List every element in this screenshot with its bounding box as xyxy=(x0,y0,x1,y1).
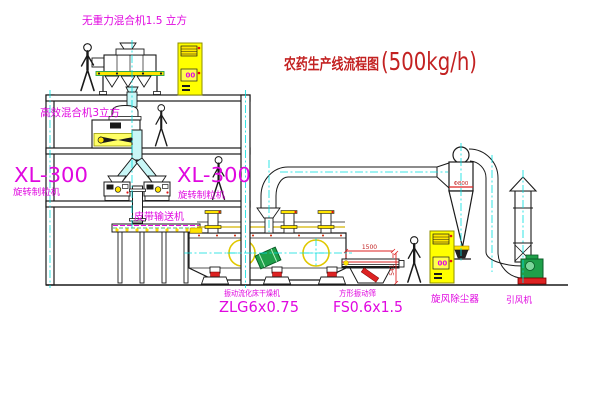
label-granulator-left-name: 旋转制粒机 xyxy=(13,186,60,198)
label-top-mixer: 无重力混合机1.5 立方 xyxy=(82,13,187,27)
label-granulator-right-name: 旋转制粒机 xyxy=(178,189,225,201)
granulator-left xyxy=(104,176,130,201)
label-cyclone: 旋风除尘器 xyxy=(431,293,479,305)
diagram-canvas: Φ800 1500 541 无重力混 xyxy=(0,0,600,403)
granulator-right xyxy=(144,176,170,201)
control-cabinet-roof xyxy=(178,43,202,95)
label-dryer-model: ZLG6x0.75 xyxy=(219,298,299,316)
induced-draft-fan xyxy=(518,255,546,284)
label-floor2-mixer: 高效混合机3立方 xyxy=(40,106,120,119)
fan-base xyxy=(518,278,546,284)
process-flow-diagram: Φ800 1500 541 无重力混 xyxy=(0,0,600,403)
page-title: 农药生产线流程图 xyxy=(283,55,379,73)
label-fan: 引风机 xyxy=(506,294,532,306)
roof-cabinet-text: 00 xyxy=(186,72,196,80)
person-figure xyxy=(156,105,167,146)
dimension-1500: 1500 xyxy=(344,244,395,258)
person-figure xyxy=(408,237,421,282)
roof-slab xyxy=(46,95,250,101)
belt-conveyor xyxy=(112,224,200,283)
label-granulator-right-model: XL-300 xyxy=(177,163,251,187)
label-dryer-name: 振动流化床干燥机 xyxy=(224,288,280,298)
belt-rollers xyxy=(115,228,198,231)
label-sieve-model: FS0.6x1.5 xyxy=(333,298,403,316)
label-granulator-left-model: XL-300 xyxy=(14,163,88,187)
mixer-cross-bar xyxy=(96,72,164,76)
square-vibrating-sieve: 1500 541 xyxy=(342,244,404,285)
control-cabinet-ground xyxy=(430,231,454,283)
cyclone-inlet-transition xyxy=(437,163,449,188)
label-sieve-name: 方形振动筛 xyxy=(339,288,376,298)
title-capacity: (500kg/h) xyxy=(381,47,477,76)
sieve-length-text: 1500 xyxy=(362,244,377,251)
ground-cabinet-text: 00 xyxy=(438,260,448,268)
gravityless-mixer xyxy=(92,43,164,95)
floor2-slab xyxy=(46,148,250,154)
floor3-slab xyxy=(46,201,250,207)
discharge-valve xyxy=(455,250,468,258)
dryer-inlet xyxy=(190,228,202,233)
label-belt-conveyor: 皮带输送机 xyxy=(134,210,184,223)
sieve-height-text: 541 xyxy=(389,264,396,276)
